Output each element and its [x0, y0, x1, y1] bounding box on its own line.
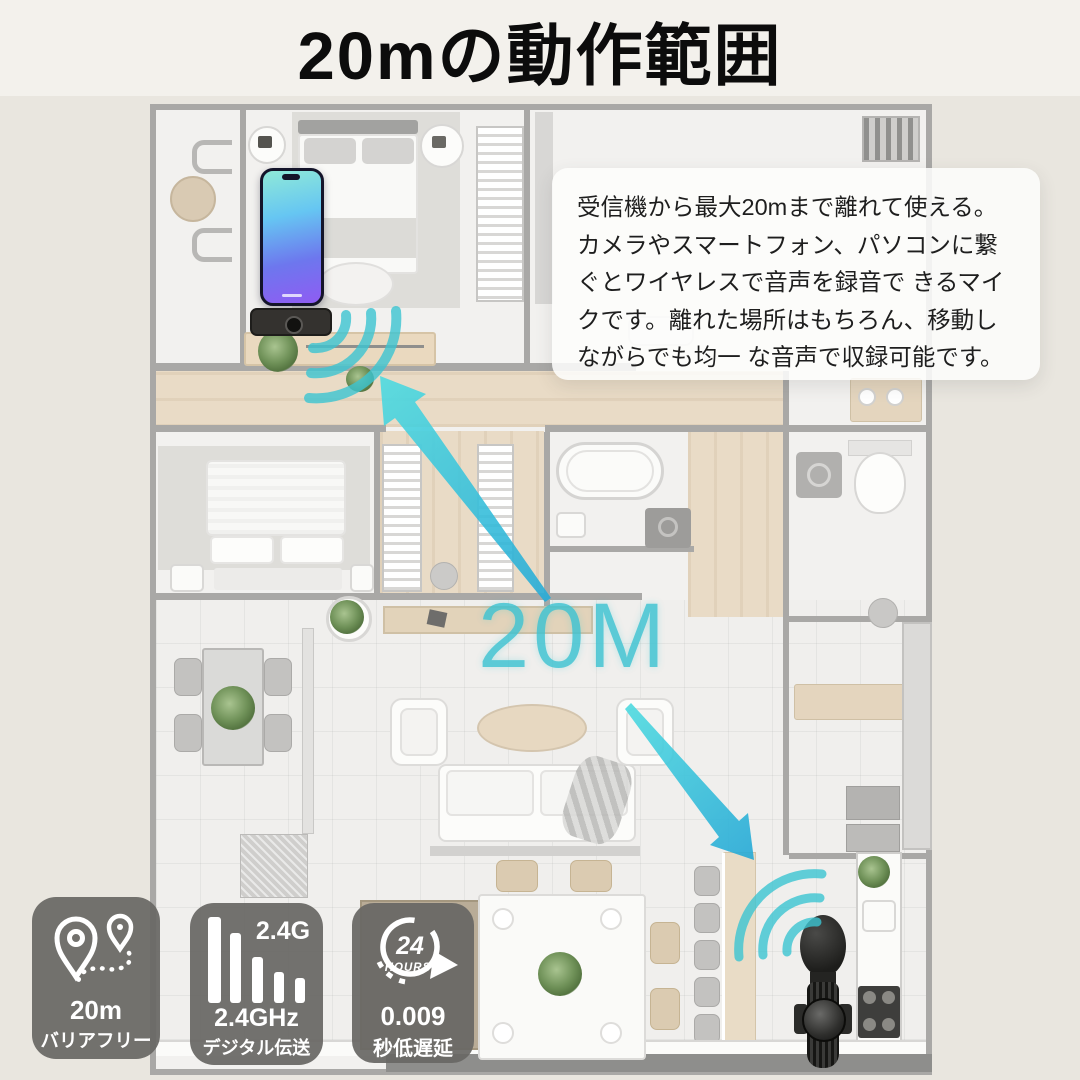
signal-overlay	[0, 0, 1080, 1080]
description-line: クです。離れた場所はもちろん、移動し	[577, 302, 1026, 340]
badge-signal-tag: 2.4G	[246, 917, 320, 946]
page-title: 20mの動作範囲	[0, 2, 1080, 99]
description-line: カメラやスマートフォン、パソコンに繋	[577, 227, 1026, 265]
wifi-waves-mic-icon	[739, 874, 822, 957]
range-distance-label: 20M	[478, 584, 669, 689]
description-box: 受信機から最大20mまで離れて使える。 カメラやスマートフォン、パソコンに繋 ぐ…	[552, 168, 1040, 380]
badge-latency-value: 0.009	[352, 1001, 474, 1032]
badge-signal-label: デジタル伝送	[190, 1034, 323, 1060]
badge-signal: 2.4G 2.4GHz デジタル伝送	[190, 903, 323, 1065]
range-arrow-to-mic-icon	[625, 703, 754, 860]
badge-signal-value: 2.4GHz	[190, 1004, 323, 1033]
badge-range-value: 20m	[32, 995, 160, 1026]
badge-latency-icon-top: 24	[395, 932, 424, 960]
badge-latency-label: 秒低遅延	[352, 1032, 474, 1061]
badge-latency: 24 HOURS 0.009 秒低遅延	[352, 903, 474, 1063]
range-arrow-to-receiver-icon	[380, 376, 551, 602]
24-hours-icon: 24 HOURS	[366, 909, 460, 997]
product-infographic: 20M 受信機から最大20mまで離れて使える。 カメラやスマートフォン、パソコン…	[0, 0, 1080, 1080]
badge-range-label: バリアフリー	[32, 1027, 160, 1053]
route-pins-icon	[46, 903, 146, 999]
description-line: ぐとワイヤレスで音声を録音で きるマイ	[577, 264, 1026, 302]
badge-latency-icon-sub: HOURS	[385, 962, 432, 974]
badge-range: 20m バリアフリー	[32, 897, 160, 1059]
description-line: 受信機から最大20mまで離れて使える。	[577, 189, 1026, 227]
description-line: ながらでも均一 な音声で収録可能です。	[577, 339, 1026, 377]
